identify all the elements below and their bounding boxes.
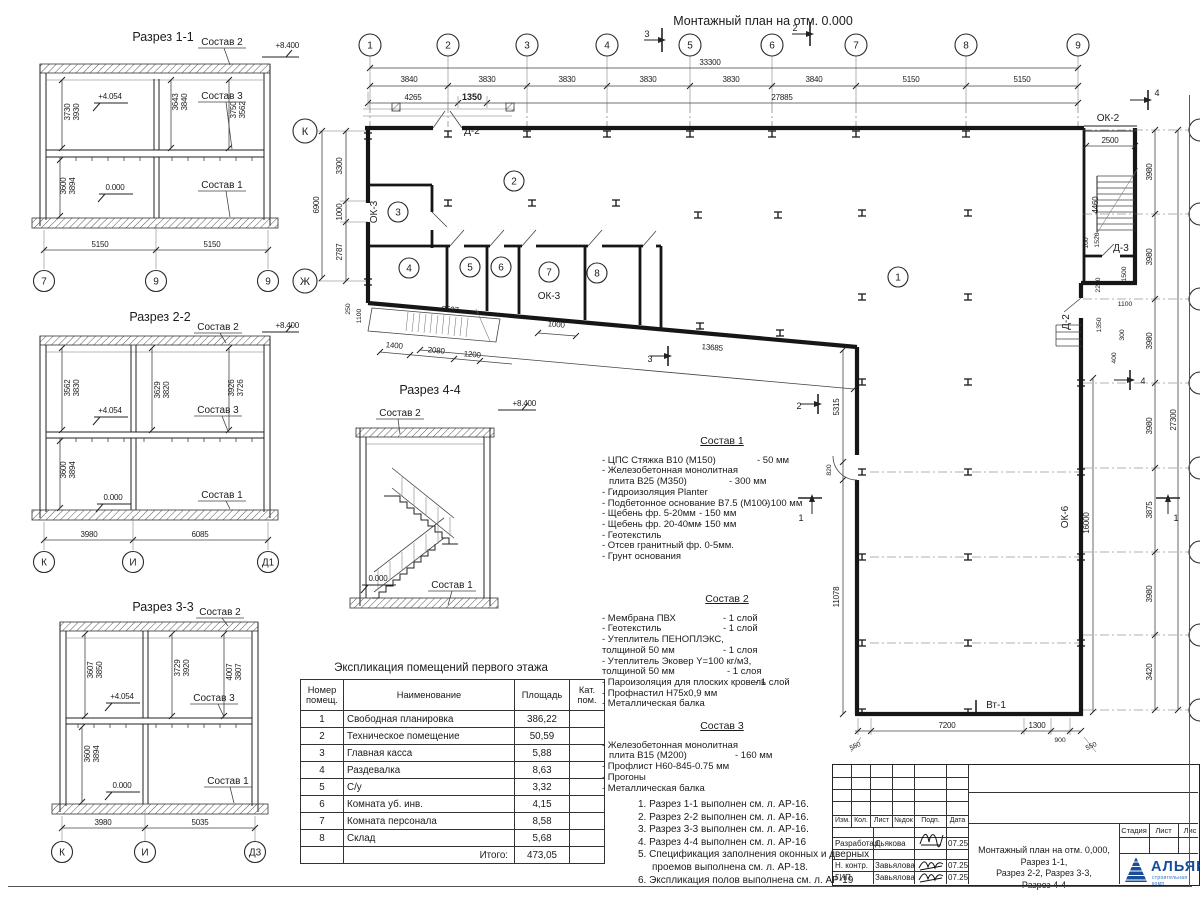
- sostav-item: - Щебень фр. 5-20мм: [602, 508, 696, 519]
- dim-label: 3830: [723, 75, 741, 84]
- cell: 386,22: [515, 711, 570, 728]
- cell: [570, 779, 605, 796]
- room-number: 5: [467, 263, 473, 274]
- section-mark-label: 2: [792, 23, 797, 33]
- dim-label: 27300: [1169, 409, 1178, 431]
- cell: 5,88: [515, 745, 570, 762]
- dim-label: 8537: [441, 304, 459, 315]
- door-label: Д-3: [1113, 243, 1129, 254]
- dim-label: 1300: [1029, 721, 1047, 730]
- leader: [198, 48, 246, 65]
- grid-line: [1119, 853, 1198, 854]
- sostav-item: - Металлическая балка: [602, 698, 705, 709]
- sostav-item: плита В25 (М350): [609, 476, 687, 487]
- col-header-area: Площадь: [515, 680, 570, 711]
- dim-label: 1100: [356, 308, 363, 323]
- table-row: 2Техническое помещение50,59: [301, 728, 605, 745]
- dim-label: 5150: [92, 240, 110, 249]
- table-row: 7Комната персонала8,58: [301, 813, 605, 830]
- dim-label: 3980: [1145, 417, 1154, 435]
- dim-label: 1520: [1094, 232, 1101, 247]
- sostav-item: - Утеплитель ПЕНОПЛЭКС,: [602, 634, 724, 645]
- mid-floor: [66, 718, 252, 724]
- sostav-value: - 160 мм: [735, 751, 772, 762]
- dim-label: 3830: [640, 75, 658, 84]
- dim-label: 3820: [162, 381, 171, 399]
- level-label: 0.000: [368, 574, 388, 583]
- beam-label: Вт-1: [986, 700, 1006, 711]
- signature: [917, 870, 945, 884]
- elevation-mark: [262, 50, 299, 57]
- cell: 8,58: [515, 813, 570, 830]
- cell: [570, 847, 605, 864]
- sostav-item: - Профлист Н60-845-0.75 мм: [602, 761, 729, 772]
- cell: [570, 728, 605, 745]
- level-label: 0.000: [103, 493, 123, 502]
- section-3-3: Разрез 3-3 3607 3850 3729 3920 4007 3807…: [52, 600, 269, 863]
- section-4-4: Разрез 4-4 +8.400 Состав 2 0.000 Состав …: [350, 383, 537, 608]
- room-number: 4: [406, 264, 412, 275]
- section-title: Разрез 3-3: [132, 600, 193, 614]
- dim-label: 3980: [1145, 585, 1154, 603]
- dim-label: 1400: [385, 340, 403, 351]
- cell: [570, 796, 605, 813]
- dim-label: 3562: [63, 379, 72, 397]
- tick: [57, 345, 232, 511]
- cell: [570, 711, 605, 728]
- signature: [917, 828, 945, 848]
- grid-line: [833, 789, 968, 790]
- axis-bubble: [1189, 288, 1200, 310]
- sostav-item: - Грунт основания: [602, 551, 681, 562]
- door-swing: [1064, 244, 1114, 312]
- sostav-item: - Пароизоляция для плоских кровель: [602, 677, 766, 688]
- tb-stage-header: Стадия: [1120, 826, 1148, 835]
- dim-label: 1000: [547, 319, 565, 330]
- table-row: 3Главная касса5,88: [301, 745, 605, 762]
- cell: 3,32: [515, 779, 570, 796]
- dim-label: 6900: [312, 196, 321, 214]
- room-number: 2: [511, 177, 517, 188]
- axis-label: К: [302, 126, 309, 138]
- title-block: Изм. Кол. Лист №док Подп. Дата Разработа…: [832, 764, 1200, 886]
- axis-label: 7: [41, 277, 47, 288]
- table-row: 6Комната уб. инв.4,15: [301, 796, 605, 813]
- col-header-number: Номер помещ.: [301, 680, 344, 711]
- company-logo-icon: [1125, 857, 1147, 882]
- tb-col-header: Лист: [871, 817, 892, 824]
- cell: 6: [301, 796, 344, 813]
- dim-label: 3562: [238, 101, 247, 119]
- leader-label: Состав 1: [431, 580, 473, 591]
- document-title: Монтажный план на отм. 0,000, Разрез 1-1…: [969, 823, 1119, 885]
- level-label: +4.054: [98, 406, 122, 415]
- total-label: Итого:: [344, 847, 515, 864]
- sostav-item: - Железобетонная монолитная: [602, 740, 738, 751]
- dim-label: 300: [1119, 329, 1126, 341]
- level-mark: [98, 194, 133, 202]
- ground-slab: [32, 510, 278, 520]
- section-title: Разрез 2-2: [129, 310, 190, 324]
- dim-label: 1000: [335, 203, 344, 221]
- tb-col-header: Кол.: [852, 817, 870, 824]
- room-number: 3: [395, 208, 401, 219]
- axis-label: И: [129, 558, 136, 569]
- room-explication-table: Экспликация помещений первого этажа Номе…: [300, 662, 582, 864]
- sostav-value: - 300 мм: [729, 477, 766, 488]
- dim-label: 3840: [806, 75, 824, 84]
- roof-slab: [356, 428, 494, 437]
- ground-slab: [350, 598, 498, 608]
- dim-label: 3894: [68, 177, 77, 195]
- dim-label: 250: [345, 303, 352, 315]
- dim-label: 1100: [1118, 301, 1133, 308]
- dim-label: 3607: [86, 661, 95, 679]
- level-mark: [105, 703, 140, 711]
- dim-label: 3643: [171, 93, 180, 111]
- dim-label: 5150: [204, 240, 222, 249]
- dim-label: 3726: [236, 379, 245, 397]
- door-label: Д-2: [1061, 314, 1072, 330]
- dim-label: 550: [849, 741, 862, 752]
- dim-label: 3926: [227, 379, 236, 397]
- grid-line: [833, 815, 968, 816]
- dim-label: 13685: [701, 342, 724, 353]
- tb-col-header: Изм.: [834, 817, 851, 824]
- cell: 2: [301, 728, 344, 745]
- dim-label: 5035: [192, 818, 210, 827]
- dim-line: [843, 350, 1093, 714]
- sostav-3-block: Состав 3 - Железобетонная монолитная пли…: [602, 721, 842, 794]
- joists: [60, 157, 252, 161]
- dim-label: 27885: [771, 93, 793, 102]
- sostav-item: - Геотекстиль: [602, 530, 661, 541]
- ext-line: [44, 224, 268, 269]
- axis-label: 2: [445, 41, 451, 52]
- axis-bubble: [1189, 203, 1200, 225]
- tb-name: Завьялова: [875, 873, 915, 882]
- stair-break: [1094, 168, 1138, 238]
- cell: [570, 762, 605, 779]
- dim-label: 5150: [903, 75, 921, 84]
- dim-label: 3980: [1145, 248, 1154, 266]
- roof-slab: [40, 64, 270, 73]
- section-1-1: Разрез 1-1 3730 3930 3643 3840 3750 3562…: [32, 30, 300, 292]
- dim-label: 3920: [182, 659, 191, 677]
- dim-label: 3420: [1145, 663, 1154, 681]
- leader-label: Состав 3: [201, 91, 243, 102]
- grid-line: [1178, 823, 1179, 853]
- plan-title: Монтажный план на отм. 0.000: [673, 14, 853, 28]
- cell: Главная касса: [344, 745, 515, 762]
- sostav-item: - Мембрана ПВХ: [602, 613, 676, 624]
- leader-label: Состав 1: [201, 180, 243, 191]
- grid-line: [946, 765, 947, 884]
- leader-label: Состав 2: [379, 408, 421, 419]
- column: [154, 79, 159, 218]
- axis-label: 9: [265, 277, 271, 288]
- cell: 4: [301, 762, 344, 779]
- tb-date: 07.25: [948, 861, 968, 870]
- grid-line: [833, 827, 968, 828]
- tb-role: Разработал: [835, 839, 879, 848]
- sostav-title: Состав 3: [602, 721, 842, 732]
- canopy: [363, 109, 512, 116]
- axis-line: [870, 130, 1189, 710]
- mid-floor: [46, 432, 264, 438]
- dim-label: 3830: [559, 75, 577, 84]
- wall: [368, 185, 661, 248]
- level-mark: [93, 417, 128, 425]
- axis-label: Ж: [300, 276, 310, 288]
- sostav-item: - Гидроизоляция Planter: [602, 487, 708, 498]
- table-title: Экспликация помещений первого этажа: [300, 662, 582, 674]
- dim-label: 3875: [1145, 501, 1154, 519]
- dim-label: 2787: [335, 243, 344, 261]
- axis-bubble: [1189, 119, 1200, 141]
- cell: 3: [301, 745, 344, 762]
- axis-label: 9: [1075, 41, 1081, 52]
- axis-label: Д1: [262, 558, 275, 569]
- sostav-item: - ЦПС Стяжка В10 (М150): [602, 455, 716, 466]
- section-mark-label: 3: [644, 29, 649, 39]
- axis-line: [370, 104, 1078, 127]
- company-logo-text: АЛЬЯН: [1151, 859, 1200, 875]
- table-row: 1Свободная планировка386,22: [301, 711, 605, 728]
- sostav-value: - 50 мм: [757, 456, 789, 467]
- joists: [60, 438, 252, 442]
- sostav-item: - Утеплитель Эковер Y=100 кг/м3,: [602, 656, 751, 667]
- cell: 4,15: [515, 796, 570, 813]
- axis-label: 7: [853, 41, 859, 52]
- level-mark: [93, 103, 128, 111]
- dim-label: 3600: [59, 461, 68, 479]
- cell: 50,59: [515, 728, 570, 745]
- room-number: 8: [594, 269, 600, 280]
- room-number: 1: [895, 273, 901, 284]
- axis-bubble: [1189, 624, 1200, 646]
- dim-label: 550: [1085, 741, 1098, 752]
- leader-label: Состав 3: [197, 405, 239, 416]
- leader-label: Состав 2: [199, 607, 241, 618]
- dim-label: 16000: [1082, 512, 1091, 534]
- axis-label: 6: [769, 41, 775, 52]
- tb-name: Завьялова: [875, 861, 915, 870]
- dim-label: 5150: [1014, 75, 1032, 84]
- leader-label: Состав 2: [197, 322, 239, 333]
- grid-line: [833, 859, 968, 860]
- section-mark-label: 4: [1140, 376, 1145, 386]
- dim-line: [60, 348, 229, 508]
- axis-label: 5: [687, 41, 693, 52]
- sostav-value: - 150 мм: [699, 520, 736, 531]
- total-value: 473,05: [515, 847, 570, 864]
- dim-label: 400: [1111, 352, 1118, 364]
- table-row: 8Склад5,68: [301, 830, 605, 847]
- sostav-item: толщиной 50 мм: [602, 666, 675, 677]
- axis-label: 1: [367, 41, 373, 52]
- sheet-frame-right: [1189, 95, 1190, 886]
- ground-slab: [52, 804, 268, 814]
- dim-label: 2200: [1095, 277, 1102, 292]
- cell: [570, 745, 605, 762]
- axis-bubble: [1189, 699, 1200, 721]
- dim-label: 3729: [173, 659, 182, 677]
- level-label: +4.054: [98, 92, 122, 101]
- axis-label: К: [59, 848, 65, 859]
- dim-label: 33300: [699, 58, 721, 67]
- document-title-line: Разрез 2-2, Разрез 3-3,: [969, 868, 1119, 880]
- grid-line: [833, 837, 968, 838]
- cell: 8,63: [515, 762, 570, 779]
- table-row: 5С/у3,32: [301, 779, 605, 796]
- grid-line: [833, 801, 968, 802]
- roof-slab: [60, 622, 258, 631]
- ext-line: [44, 516, 268, 550]
- dim-label: 3894: [68, 461, 77, 479]
- document-title-line: Монтажный план на отм. 0,000, Разрез 1-1…: [969, 845, 1119, 868]
- dim-label: 100: [1083, 237, 1090, 249]
- dim-label: 2500: [1102, 136, 1120, 145]
- sostav-item: - Щебень фр. 20-40мм: [602, 519, 701, 530]
- roof-slab: [40, 336, 270, 345]
- section-mark-label: 1: [1173, 513, 1178, 523]
- col-header-name: Наименование: [344, 680, 515, 711]
- tb-role: ГИП: [835, 873, 851, 882]
- dim-label: 1200: [463, 349, 481, 360]
- level-mark: [105, 792, 140, 800]
- dim-label: 7200: [939, 721, 957, 730]
- wall: [40, 64, 270, 226]
- axis-label: 4: [604, 41, 610, 52]
- cell: Свободная планировка: [344, 711, 515, 728]
- dim-label: 3980: [1145, 332, 1154, 350]
- tb-sheet-header: Лист: [1150, 826, 1177, 835]
- section-2-2: Разрез 2-2 3562 3830 3629 3820 3926 3726…: [32, 310, 300, 573]
- dim-label: 3840: [180, 93, 189, 111]
- grid-line: [833, 777, 968, 778]
- sostav-2-block: Состав 2 - Мембрана ПВХ- 1 слой - Геотек…: [602, 594, 852, 710]
- dim-label: 3600: [59, 177, 68, 195]
- section-title: Разрез 4-4: [399, 383, 460, 397]
- dim-label: 3850: [95, 661, 104, 679]
- dim-label: 2080: [427, 345, 445, 356]
- grid-line: [873, 827, 874, 884]
- leader: [198, 191, 246, 217]
- leader-label: Состав 3: [193, 693, 235, 704]
- sostav-item: - Металлическая балка: [602, 783, 705, 794]
- tb-date: 07.25: [948, 873, 968, 882]
- dim-label: 3730: [63, 103, 72, 121]
- cell: 8: [301, 830, 344, 847]
- tb-name: Дьякова: [875, 839, 906, 848]
- sostav-item: - Отсев гранитный фр. 0-5мм.: [602, 540, 734, 551]
- axis-label: К: [41, 558, 47, 569]
- table-row: 4Раздевалка8,63: [301, 762, 605, 779]
- dim-label: 3807: [234, 663, 243, 681]
- canopy-post: [506, 103, 514, 111]
- dim-label: 3930: [72, 103, 81, 121]
- dim-label: 3980: [95, 818, 113, 827]
- window-label: ОК-6: [1060, 505, 1071, 528]
- leader: [198, 501, 246, 509]
- section-mark-label: 3: [647, 354, 652, 364]
- dim-label: 4460: [1091, 196, 1100, 214]
- axis-bubble: [1189, 457, 1200, 479]
- sostav-1-block: Состав 1 - ЦПС Стяжка В10 (М150)- 50 мм …: [602, 436, 842, 563]
- level-label: 0.000: [105, 183, 125, 192]
- section-mark-label: 2: [796, 401, 801, 411]
- table-header-row: Номер помещ. Наименование Площадь Кат. п…: [301, 680, 605, 711]
- stair-balusters: [378, 477, 450, 589]
- cell: Раздевалка: [344, 762, 515, 779]
- sostav-item: - Прогоны: [602, 772, 646, 783]
- cell: 7: [301, 813, 344, 830]
- dim-label: 3894: [92, 745, 101, 763]
- canopy-post: [392, 103, 400, 111]
- elevation-label: +8.400: [513, 399, 537, 408]
- cell: Склад: [344, 830, 515, 847]
- cell: [570, 813, 605, 830]
- cell: 5: [301, 779, 344, 796]
- tb-role: Н. контр.: [835, 861, 868, 870]
- axis-label: И: [141, 848, 148, 859]
- leader-label: Состав 2: [201, 37, 243, 48]
- dim-label: 5315: [832, 398, 841, 416]
- grid-line: [833, 871, 968, 872]
- axis-bubble: [1189, 372, 1200, 394]
- tb-sheets-header: Лис: [1180, 826, 1200, 835]
- door-swing: [433, 111, 462, 128]
- leader: [190, 704, 238, 717]
- dim-label: 3750: [229, 101, 238, 119]
- sheet-frame-bottom: [8, 886, 1192, 887]
- door-swing: [432, 212, 656, 246]
- sostav-item: - Железобетонная монолитная: [602, 465, 738, 476]
- axis-label: 3: [524, 41, 530, 52]
- elevation-label: +8.400: [276, 41, 300, 50]
- leader-label: Состав 1: [207, 776, 249, 787]
- sostav-item: плита В15 (М200): [609, 750, 687, 761]
- axis-bubble: [1189, 541, 1200, 563]
- tick: [840, 347, 1096, 717]
- cell: Техническое помещение: [344, 728, 515, 745]
- sostav-value: - 1 слой: [755, 678, 790, 689]
- tick: [319, 128, 349, 284]
- dim-label: 6085: [192, 530, 210, 539]
- leader-label: Состав 1: [201, 490, 243, 501]
- dim-label: 3600: [83, 745, 92, 763]
- dim-label: 4007: [225, 663, 234, 681]
- dim-label: 3300: [335, 157, 344, 175]
- joists: [78, 724, 236, 728]
- wall: [1081, 128, 1137, 283]
- tb-col-header: Подп.: [915, 817, 946, 824]
- cell: 1: [301, 711, 344, 728]
- grid-line: [833, 849, 968, 850]
- dim-label: 900: [1054, 737, 1066, 744]
- level-label: 0.000: [112, 781, 132, 790]
- cell: С/у: [344, 779, 515, 796]
- axis-label: 8: [963, 41, 969, 52]
- dim-label: 3629: [153, 381, 162, 399]
- dim-label: 3980: [1145, 163, 1154, 181]
- door-label: Д-2: [464, 126, 480, 137]
- sostav-item: - Геотекстиль: [602, 623, 661, 634]
- sostav-item: - Профнастил Н75х0,9 мм: [602, 688, 717, 699]
- mid-floor: [46, 150, 264, 157]
- cell: Комната уб. инв.: [344, 796, 515, 813]
